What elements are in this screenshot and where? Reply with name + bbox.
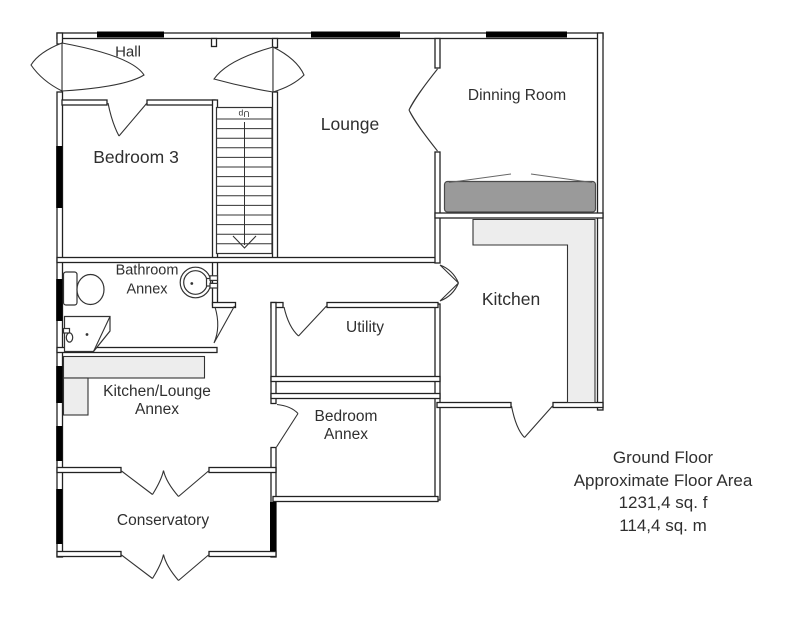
door-hall-entrance-outer <box>31 43 62 91</box>
window-conservatory-right <box>270 502 276 551</box>
door-hall-lounge-left <box>214 47 273 92</box>
door-kitchen-south <box>512 406 553 438</box>
room-label-dinning-room: Dinning Room <box>468 87 566 105</box>
kitchen-counter <box>473 220 595 403</box>
door-lounge-dinning-bottom <box>409 110 438 151</box>
summary-subtitle: Approximate Floor Area <box>574 470 753 493</box>
room-label-utility: Utility <box>346 319 384 337</box>
floor-plan-page: Hall Bedroom 3 Lounge Dinning Room Bathr… <box>0 0 800 622</box>
toilet-fixture <box>64 272 105 305</box>
door-conservatory-north <box>122 471 209 497</box>
window-bathroom <box>56 279 62 321</box>
door-hall-lounge-right <box>273 47 304 92</box>
room-label-kitchen-lounge-annex-1: Kitchen/Lounge <box>103 383 211 401</box>
door-corridor-kitchen <box>440 265 459 301</box>
window-hall <box>97 32 164 38</box>
room-label-kitchen: Kitchen <box>482 289 540 309</box>
window-dinning <box>486 32 567 38</box>
summary-area-sqft: 1231,4 sq. f <box>574 492 753 515</box>
stairs-up-label: Up <box>239 108 250 118</box>
window-annex-2 <box>56 426 62 461</box>
floor-area-summary: Ground Floor Approximate Floor Area 1231… <box>574 447 753 537</box>
window-bedroom3 <box>56 146 62 208</box>
window-annex-1 <box>56 366 62 403</box>
room-label-conservatory: Conservatory <box>117 512 209 530</box>
summary-title: Ground Floor <box>574 447 753 470</box>
room-label-lounge: Lounge <box>321 114 379 134</box>
room-label-bedroom-annex-2: Annex <box>324 426 368 444</box>
room-label-bedroom3: Bedroom 3 <box>93 147 179 167</box>
door-bathroom <box>214 306 235 343</box>
sideboard-furniture <box>445 174 596 212</box>
room-label-bathroom-annex-1: Bathroom <box>116 263 179 280</box>
door-conservatory-south <box>122 555 209 581</box>
room-label-kitchen-lounge-annex-2: Annex <box>135 401 179 419</box>
window-conservatory-left <box>56 489 62 544</box>
door-lounge-dinning-top <box>409 69 438 110</box>
door-bedroom-annex <box>277 405 299 448</box>
door-utility <box>284 306 327 336</box>
room-label-hall: Hall <box>115 43 141 60</box>
room-label-bedroom-annex-1: Bedroom <box>315 408 378 426</box>
window-lounge <box>311 32 400 38</box>
room-label-bathroom-annex-2: Annex <box>126 282 167 299</box>
vanity-fixture <box>64 317 111 352</box>
staircase <box>217 108 273 254</box>
door-bedroom3 <box>108 103 147 136</box>
summary-area-sqm: 114,4 sq. m <box>574 515 753 538</box>
